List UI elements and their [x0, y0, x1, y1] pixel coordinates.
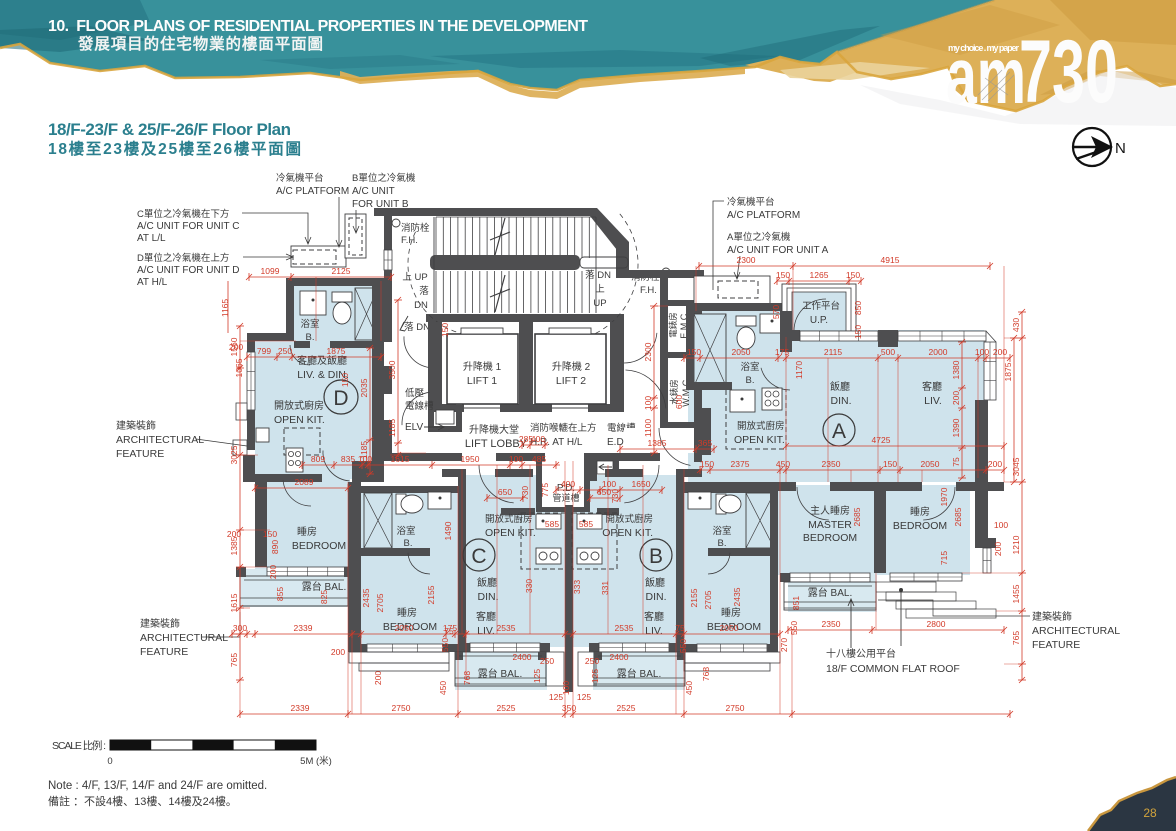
svg-text:100: 100: [994, 520, 1008, 530]
svg-text:125: 125: [549, 692, 563, 702]
svg-text:1455: 1455: [1011, 584, 1021, 603]
svg-text:睡房: 睡房: [721, 606, 741, 619]
svg-text:2800: 2800: [927, 619, 946, 629]
svg-text:4725: 4725: [872, 435, 891, 445]
svg-text:開放式廚房: 開放式廚房: [274, 399, 324, 412]
svg-text:睡房: 睡房: [397, 606, 417, 619]
svg-text:BEDROOM: BEDROOM: [292, 540, 346, 552]
svg-text:低壓: 低壓: [405, 387, 425, 399]
svg-text:FEATURE: FEATURE: [1032, 639, 1080, 651]
svg-text:C單位之冷氣機在下方: C單位之冷氣機在下方: [137, 208, 229, 220]
svg-text:浴室: 浴室: [712, 525, 731, 537]
svg-text:2089: 2089: [295, 477, 314, 487]
svg-text:200: 200: [331, 647, 345, 657]
svg-text:855: 855: [275, 587, 285, 601]
svg-text:開放式廚房: 開放式廚房: [605, 513, 653, 525]
svg-text:835: 835: [341, 454, 355, 464]
svg-text:18/F-23/F & 25/F-26/F Floor Pl: 18/F-23/F & 25/F-26/F Floor Plan: [48, 120, 291, 139]
svg-text:電錶房: 電錶房: [668, 312, 678, 338]
svg-text:2155: 2155: [689, 588, 699, 607]
svg-text:冷氣機平台: 冷氣機平台: [727, 196, 775, 208]
svg-text:升降機大堂: 升降機大堂: [469, 423, 519, 436]
svg-text:工作平台: 工作平台: [802, 300, 840, 312]
svg-text:430: 430: [1011, 318, 1021, 332]
svg-text:C: C: [471, 545, 486, 568]
svg-text:485: 485: [532, 454, 546, 464]
svg-text:1615: 1615: [229, 593, 239, 612]
svg-text:消防喉轆在上方: 消防喉轆在上方: [530, 422, 597, 434]
svg-text:150: 150: [700, 459, 714, 469]
svg-text:350: 350: [562, 703, 576, 713]
svg-text:升降機 2: 升降機 2: [552, 360, 591, 373]
svg-text:A單位之冷氣機: A單位之冷氣機: [727, 231, 791, 243]
svg-text:100: 100: [643, 396, 653, 410]
svg-text:A/C UNIT: A/C UNIT: [352, 186, 395, 197]
svg-text:650: 650: [498, 487, 512, 497]
svg-text:十八樓公用平台: 十八樓公用平台: [826, 647, 896, 660]
svg-text:客廳: 客廳: [644, 610, 664, 623]
svg-text:1380: 1380: [951, 360, 961, 379]
svg-text:MASTER: MASTER: [808, 519, 852, 531]
svg-text:D: D: [333, 387, 348, 410]
svg-text:升降機 1: 升降機 1: [463, 360, 502, 373]
svg-text:FEATURE: FEATURE: [140, 646, 188, 658]
svg-text:2115: 2115: [824, 347, 843, 357]
svg-text:200: 200: [993, 347, 1007, 357]
svg-text:765: 765: [1011, 631, 1021, 645]
svg-text:75: 75: [444, 626, 454, 636]
svg-text:150: 150: [687, 347, 701, 357]
svg-text:1390: 1390: [951, 418, 961, 437]
svg-text:2339: 2339: [291, 703, 310, 713]
svg-text:150: 150: [846, 270, 860, 280]
svg-text:落 DN: 落 DN: [404, 321, 430, 333]
svg-text:上: 上: [595, 284, 605, 295]
svg-text:250: 250: [540, 656, 554, 666]
svg-text:250: 250: [585, 656, 599, 666]
svg-text:B單位之冷氣機: B單位之冷氣機: [352, 172, 416, 184]
svg-text:4915: 4915: [881, 255, 900, 265]
svg-text:200: 200: [268, 565, 278, 579]
svg-text:2435: 2435: [361, 588, 371, 607]
svg-text:1385: 1385: [648, 438, 667, 448]
svg-text:250: 250: [278, 346, 292, 356]
svg-text:100: 100: [509, 454, 523, 464]
svg-text:550: 550: [789, 621, 799, 635]
svg-text:150: 150: [853, 325, 863, 339]
svg-text:175: 175: [775, 347, 789, 357]
svg-text:2035: 2035: [359, 378, 369, 397]
svg-text:1100: 1100: [643, 419, 653, 438]
svg-text:2375: 2375: [731, 459, 750, 469]
svg-text:消防栓: 消防栓: [401, 222, 430, 234]
svg-text:1875: 1875: [327, 346, 346, 356]
svg-text:D單位之冷氣機在上方: D單位之冷氣機在上方: [137, 252, 229, 264]
svg-text:799: 799: [257, 346, 271, 356]
svg-text:露台 BAL.: 露台 BAL.: [478, 667, 522, 680]
svg-text:18/F COMMON FLAT ROOF: 18/F COMMON FLAT ROOF: [826, 663, 960, 675]
svg-text:775: 775: [540, 483, 550, 497]
svg-text:2705: 2705: [703, 590, 713, 609]
svg-text:1615: 1615: [391, 454, 410, 464]
svg-text:28: 28: [1143, 806, 1157, 820]
svg-text:發展項目的住宅物業的樓面平面圖: 發展項目的住宅物業的樓面平面圖: [77, 34, 323, 53]
svg-text:落 DN: 落 DN: [585, 269, 611, 281]
svg-text:2155: 2155: [426, 585, 436, 604]
svg-text:2300: 2300: [643, 342, 653, 361]
svg-text:333: 333: [572, 580, 582, 594]
svg-text:2525: 2525: [497, 703, 516, 713]
svg-text:765: 765: [229, 653, 239, 667]
svg-text:570: 570: [771, 305, 781, 319]
svg-text:730: 730: [520, 486, 530, 500]
svg-text:450: 450: [438, 681, 448, 695]
svg-text:1185: 1185: [387, 419, 397, 438]
svg-text:550: 550: [678, 639, 688, 653]
svg-text:850: 850: [853, 301, 863, 315]
svg-text:125: 125: [590, 669, 600, 683]
svg-text:2435: 2435: [732, 587, 742, 606]
svg-text:2350: 2350: [822, 619, 841, 629]
svg-text:331: 331: [600, 581, 610, 595]
svg-text:825: 825: [319, 590, 329, 604]
svg-text:1210: 1210: [1011, 535, 1021, 554]
svg-text:330: 330: [524, 579, 534, 593]
svg-text:浴室: 浴室: [396, 525, 415, 537]
svg-text:DN: DN: [414, 300, 428, 311]
svg-text:2750: 2750: [392, 703, 411, 713]
svg-text:2050: 2050: [732, 347, 751, 357]
svg-text:飯廳: 飯廳: [645, 576, 665, 589]
svg-text:開放式廚房: 開放式廚房: [737, 420, 785, 432]
svg-text:落: 落: [419, 285, 429, 297]
svg-text:10. FLOOR PLANS OF RESIDENTIA: 10. FLOOR PLANS OF RESIDENTIAL PROPERTIE…: [48, 18, 588, 35]
svg-text:1170: 1170: [794, 361, 804, 380]
svg-text:715: 715: [939, 551, 949, 565]
svg-text:U.P.: U.P.: [810, 315, 828, 326]
svg-text:2535: 2535: [615, 623, 634, 633]
svg-text:2050: 2050: [720, 623, 739, 633]
svg-text:1490: 1490: [443, 521, 453, 540]
svg-text:am: am: [946, 31, 1026, 120]
svg-text:FEATURE: FEATURE: [116, 448, 164, 460]
svg-text:FOR UNIT B: FOR UNIT B: [352, 199, 409, 210]
svg-text:LIV.: LIV.: [924, 395, 942, 407]
svg-text:N: N: [1115, 140, 1126, 157]
svg-text:1185: 1185: [359, 441, 369, 460]
svg-text:管道槽: 管道槽: [552, 492, 579, 503]
svg-text:585: 585: [545, 519, 559, 529]
svg-text:LIV.: LIV.: [477, 625, 495, 637]
svg-text:1650: 1650: [632, 479, 651, 489]
svg-text:125: 125: [577, 692, 591, 702]
svg-text:客廳: 客廳: [476, 610, 496, 623]
svg-text:809: 809: [311, 454, 325, 464]
svg-text:1065: 1065: [234, 358, 244, 377]
svg-text:飯廳: 飯廳: [830, 380, 850, 393]
svg-text:DIN.: DIN.: [831, 395, 852, 407]
svg-text:ARCHITECTURAL: ARCHITECTURAL: [1032, 625, 1120, 637]
svg-text:飯廳: 飯廳: [477, 576, 497, 589]
svg-text:客廳: 客廳: [922, 380, 942, 393]
svg-text:B: B: [649, 545, 663, 568]
svg-text:LIV.: LIV.: [645, 625, 663, 637]
svg-text:A/C UNIT FOR UNIT C: A/C UNIT FOR UNIT C: [137, 221, 239, 232]
svg-text:ELV: ELV: [405, 422, 423, 433]
svg-text:150: 150: [263, 529, 277, 539]
svg-text:150: 150: [776, 270, 790, 280]
svg-text:200: 200: [229, 342, 243, 352]
svg-text:18樓至23樓及25樓至26樓平面圖: 18樓至23樓及25樓至26樓平面圖: [48, 139, 301, 158]
svg-text:585: 585: [579, 519, 593, 529]
svg-text:DIN.: DIN.: [478, 591, 499, 603]
svg-text:睡房: 睡房: [297, 525, 317, 538]
svg-text:OPEN KIT.: OPEN KIT.: [734, 434, 785, 446]
svg-text:電線槽: 電線槽: [405, 400, 434, 412]
svg-text:ARCHITECTURAL: ARCHITECTURAL: [140, 632, 228, 644]
svg-text:睡房: 睡房: [910, 505, 930, 518]
svg-text:200: 200: [227, 529, 241, 539]
svg-text:A/C PLATFORM: A/C PLATFORM: [276, 186, 349, 197]
svg-text:露台 BAL.: 露台 BAL.: [617, 667, 661, 680]
svg-text:75: 75: [675, 623, 685, 633]
svg-text:890: 890: [270, 540, 280, 554]
svg-text:OPEN KIT.: OPEN KIT.: [274, 414, 325, 426]
svg-text:270: 270: [779, 638, 789, 652]
svg-text:2000: 2000: [929, 347, 948, 357]
svg-text:B.: B.: [404, 538, 413, 549]
svg-text:500: 500: [881, 347, 895, 357]
svg-text:AT H/L: AT H/L: [137, 277, 168, 288]
svg-text:75: 75: [951, 457, 961, 467]
svg-text:UP: UP: [593, 298, 606, 309]
svg-text:550: 550: [440, 638, 450, 652]
svg-text:200: 200: [951, 391, 961, 405]
svg-text:1165: 1165: [220, 299, 230, 318]
svg-text:1875: 1875: [1003, 362, 1013, 381]
svg-text:A: A: [832, 420, 846, 443]
svg-text:1099: 1099: [261, 266, 280, 276]
svg-text:F.H.: F.H.: [640, 285, 657, 296]
svg-text:400: 400: [531, 434, 545, 444]
svg-text:F.H.: F.H.: [401, 235, 418, 246]
svg-text:150: 150: [440, 323, 450, 337]
svg-text:2400: 2400: [513, 652, 532, 662]
svg-text:100: 100: [975, 347, 989, 357]
svg-text:768: 768: [462, 671, 472, 685]
svg-text:125: 125: [532, 669, 542, 683]
svg-text:200: 200: [993, 542, 1003, 556]
svg-text:3025: 3025: [229, 445, 239, 464]
svg-text:2750: 2750: [726, 703, 745, 713]
svg-text:1385: 1385: [229, 536, 239, 555]
svg-text:2535: 2535: [497, 623, 516, 633]
svg-text:BEDROOM: BEDROOM: [893, 520, 947, 532]
svg-text:2339: 2339: [294, 623, 313, 633]
svg-text:露台 BAL.: 露台 BAL.: [808, 586, 852, 599]
svg-text:OPEN KIT.: OPEN KIT.: [602, 527, 653, 539]
svg-text:主人睡房: 主人睡房: [810, 504, 850, 517]
svg-text:Note : 4/F, 13/F, 14/F and 24/: Note : 4/F, 13/F, 14/F and 24/F are omit…: [48, 780, 267, 792]
svg-text:2685: 2685: [852, 507, 862, 526]
svg-text:2685: 2685: [953, 507, 963, 526]
svg-text:2400: 2400: [610, 652, 629, 662]
svg-text:A/C UNIT FOR UNIT D: A/C UNIT FOR UNIT D: [137, 265, 239, 276]
svg-text:建築裝飾: 建築裝飾: [116, 419, 156, 432]
svg-text:1265: 1265: [810, 270, 829, 280]
svg-text:2525: 2525: [617, 703, 636, 713]
svg-text:2300: 2300: [737, 255, 756, 265]
svg-text:768: 768: [701, 667, 711, 681]
svg-text:365: 365: [698, 438, 712, 448]
svg-text:3045: 3045: [1011, 457, 1021, 476]
svg-text:0: 0: [107, 756, 112, 767]
svg-text:1970: 1970: [939, 487, 949, 506]
svg-text:2125: 2125: [332, 266, 351, 276]
svg-text:AT L/L: AT L/L: [137, 233, 166, 244]
svg-text:浴室: 浴室: [300, 318, 319, 330]
svg-text:2350: 2350: [822, 459, 841, 469]
svg-text:600: 600: [674, 395, 684, 409]
svg-text:LIFT 2: LIFT 2: [556, 375, 586, 387]
svg-text:B.: B.: [718, 538, 727, 549]
svg-text:5M (米): 5M (米): [300, 755, 332, 767]
svg-text:2705: 2705: [375, 593, 385, 612]
svg-text:150: 150: [340, 373, 350, 387]
svg-text:SCALE 比例 :: SCALE 比例 :: [52, 739, 106, 752]
svg-text:備註 ：不設4樓、13樓、14樓及24樓。: 備註 ：不設4樓、13樓、14樓及24樓。: [48, 794, 237, 808]
svg-text:上 UP: 上 UP: [402, 272, 427, 283]
svg-text:LIFT 1: LIFT 1: [467, 375, 497, 387]
svg-text:1950: 1950: [461, 454, 480, 464]
svg-text:DIN.: DIN.: [646, 591, 667, 603]
svg-text:浴室: 浴室: [740, 361, 759, 373]
svg-text:2050: 2050: [395, 623, 414, 633]
svg-text:450: 450: [684, 681, 694, 695]
svg-text:E.D.: E.D.: [607, 437, 626, 448]
svg-text:OPEN KIT.: OPEN KIT.: [485, 527, 536, 539]
svg-text:200: 200: [373, 671, 383, 685]
svg-text:A/C PLATFORM: A/C PLATFORM: [727, 210, 800, 221]
svg-text:150: 150: [883, 459, 897, 469]
svg-text:851: 851: [791, 596, 801, 610]
svg-text:冷氣機平台: 冷氣機平台: [276, 172, 324, 184]
svg-text:100: 100: [602, 479, 616, 489]
svg-text:建築裝飾: 建築裝飾: [1032, 610, 1072, 623]
svg-text:3500: 3500: [387, 360, 397, 379]
svg-text:730: 730: [610, 489, 620, 503]
svg-text:ARCHITECTURAL: ARCHITECTURAL: [116, 434, 204, 446]
svg-text:BEDROOM: BEDROOM: [803, 532, 857, 544]
svg-text:2050: 2050: [921, 459, 940, 469]
svg-text:開放式廚房: 開放式廚房: [485, 513, 533, 525]
svg-text:建築裝飾: 建築裝飾: [140, 617, 180, 630]
svg-text:200: 200: [988, 459, 1002, 469]
svg-text:730: 730: [1019, 21, 1118, 121]
svg-text:B.: B.: [746, 375, 755, 386]
